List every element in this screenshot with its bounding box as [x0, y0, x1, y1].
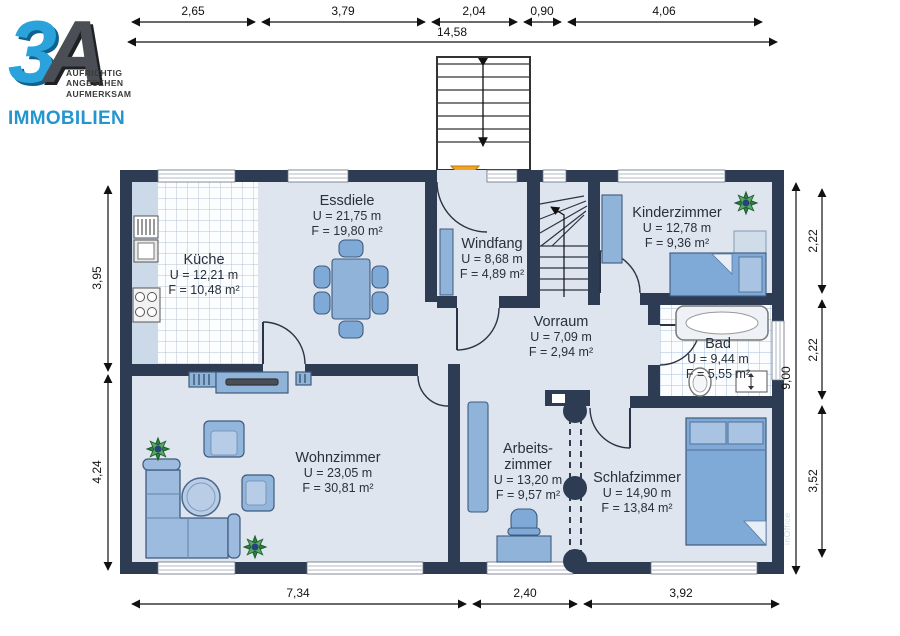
window [158, 170, 235, 182]
cabinet [468, 402, 488, 512]
window [487, 562, 573, 574]
dim-right-total: 9,00 [779, 366, 793, 389]
dim-right-2: 2,22 [806, 338, 820, 361]
armchair [242, 475, 274, 511]
dim-bottom-1: 7,34 [286, 586, 309, 600]
dim-right-1: 2,22 [806, 229, 820, 252]
logo-brand: IMMOBILIEN [8, 108, 148, 130]
kitchen-counter [132, 182, 158, 364]
dim-left-1: 3,95 [90, 266, 104, 289]
bathtub [676, 306, 768, 340]
floor-plan-page: 3A AUFRICHTIG ANGESEHEN AUFMERKSAM IMMOB… [0, 0, 900, 636]
window [158, 562, 235, 574]
armchair [204, 421, 244, 457]
dining-table [332, 259, 370, 319]
dim-top-1: 2,65 [181, 4, 204, 18]
room-label-kueche: Küche U = 12,21 m F = 10,48 m² [168, 252, 239, 299]
coffee-table [182, 478, 220, 516]
dim-left-2: 4,24 [90, 460, 104, 483]
dim-top-total: 14,58 [437, 25, 467, 39]
dim-right-3: 3,52 [806, 469, 820, 492]
dim-top-2: 3,79 [331, 4, 354, 18]
entrance-opening [437, 170, 487, 182]
window [651, 562, 757, 574]
window [618, 170, 725, 182]
desk-chair [508, 509, 540, 535]
room-label-vorraum: Vorraum U = 7,09 m F = 2,94 m² [529, 314, 593, 361]
dim-top-3: 2,04 [462, 4, 485, 18]
nightstand [734, 231, 766, 253]
sideboard [440, 229, 453, 295]
kitchen-vent [134, 216, 158, 238]
kitchen-oven [134, 240, 158, 262]
window [307, 562, 423, 574]
dim-bottom-2: 2,40 [513, 586, 536, 600]
room-label-kinderzimmer: Kinderzimmer U = 12,78 m F = 9,36 m² [632, 205, 721, 252]
window [487, 170, 517, 182]
room-label-windfang: Windfang U = 8,68 m F = 4,89 m² [460, 236, 524, 283]
staircase-exterior [437, 57, 530, 170]
tv [226, 379, 278, 385]
watermark: inOffice [782, 512, 792, 545]
dim-top-4: 0,90 [530, 4, 553, 18]
room-label-schlafzimmer: Schlafzimmer U = 14,90 m F = 13,84 m² [593, 470, 681, 517]
desk [497, 536, 551, 562]
dim-top-5: 4,06 [652, 4, 675, 18]
kitchen-stove [133, 288, 160, 322]
company-logo: 3A AUFRICHTIG ANGESEHEN AUFMERKSAM IMMOB… [8, 10, 148, 130]
room-label-wohnzimmer: Wohnzimmer U = 23,05 m F = 30,81 m² [295, 450, 380, 497]
window [543, 170, 566, 182]
logo-taglines: AUFRICHTIG ANGESEHEN AUFMERKSAM [66, 68, 148, 100]
bed-schlafzimmer [686, 418, 766, 545]
bed-kinderzimmer [670, 253, 766, 296]
room-label-arbeitszimmer: Arbeits- zimmer U = 13,20 m F = 9,57 m² [494, 441, 562, 504]
room-label-bad: Bad U = 9,44 m F = 5,55 m² [686, 336, 750, 383]
window [288, 170, 348, 182]
dim-bottom-3: 3,92 [669, 586, 692, 600]
room-label-essdiele: Essdiele U = 21,75 m F = 19,80 m² [311, 193, 382, 240]
wardrobe [602, 195, 622, 263]
